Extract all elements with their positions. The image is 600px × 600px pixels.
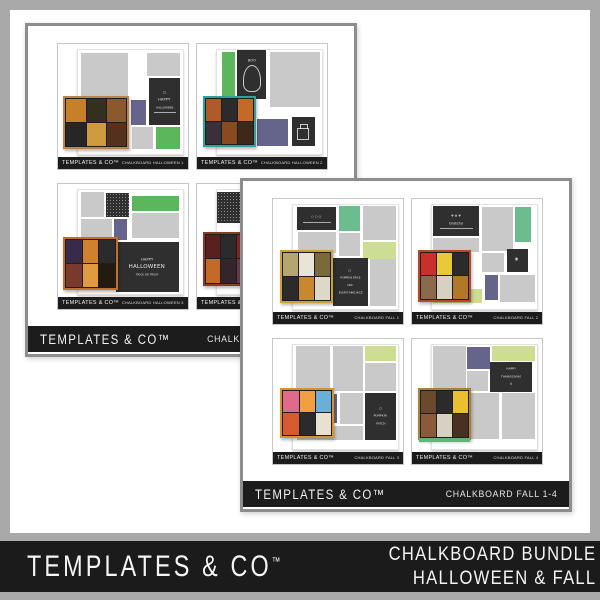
collage-photo <box>66 123 85 146</box>
card-brand: TEMPLATES & CO™ <box>40 332 171 347</box>
chalk-text: AND <box>348 284 353 287</box>
collage-photo <box>299 253 314 276</box>
collage-photo <box>238 122 253 144</box>
chalk-text: PUMPKIN <box>374 414 387 418</box>
collage-photo <box>421 414 436 437</box>
example-page-collage <box>418 250 471 302</box>
collage-photo <box>206 259 220 283</box>
preview-footer-bar: TEMPLATES & CO™CHALKBOARD FALL 3 <box>273 452 403 464</box>
preview-brand: TEMPLATES & CO™ <box>277 315 334 320</box>
example-page-collage <box>63 96 129 149</box>
lime-paper-block <box>363 242 396 259</box>
preview-title: CHALKBOARD FALL 1 <box>354 316 399 320</box>
chalk-text: PATCH <box>376 422 385 426</box>
green-paper-block <box>156 127 180 149</box>
collage-photo <box>66 240 82 263</box>
preview-footer-bar: TEMPLATES & CO™CHALKBOARD FALL 1 <box>273 312 403 324</box>
photo-placeholder-block <box>482 253 504 272</box>
brand-logo: TEMPLATES & CO™ <box>27 550 280 584</box>
green-paper-block <box>132 196 179 211</box>
photo-placeholder-block <box>296 346 330 391</box>
lime-paper-block <box>492 346 535 361</box>
product-title: CHALKBOARD BUNDLE HALLOWEEN & FALL <box>388 543 596 590</box>
photo-placeholder-block <box>482 207 512 251</box>
chalkboard-block <box>106 193 129 217</box>
template-preview: BOOTEMPLATES & CO™CHALKBOARD HALLOWEEN 2 <box>196 43 328 170</box>
collage-photo <box>87 123 106 146</box>
card-banner-bar: TEMPLATES & CO™CHALKBOARD FALL 1-4 <box>243 481 569 507</box>
preview-title: CHALKBOARD FALL 4 <box>493 456 538 460</box>
preview-brand: TEMPLATES & CO™ <box>62 300 119 305</box>
collage-photo <box>83 240 99 263</box>
purple-paper-block <box>131 100 147 125</box>
collage-photo <box>206 235 220 259</box>
collage-photo <box>421 391 436 414</box>
preview-brand: TEMPLATES & CO™ <box>62 160 119 165</box>
chalk-text: ⌂ <box>510 382 512 386</box>
product-preview-image: ○HAPPYHALLOWEENTEMPLATES & CO™CHALKBOARD… <box>0 0 600 600</box>
template-preview: ✾ ✿ ✾Grateful❀TEMPLATES & CO™CHALKBOARD … <box>411 198 543 325</box>
template-preview: ○PUMPKINPATCHTEMPLATES & CO™CHALKBOARD F… <box>272 338 404 465</box>
collage-photo <box>107 123 126 146</box>
chalkboard-block: HAPPYTHANKSGIVING⌂ <box>490 362 532 392</box>
collage-photo <box>221 235 235 259</box>
collage-photo <box>453 253 468 276</box>
photo-placeholder-block <box>132 127 153 149</box>
collage-photo <box>206 122 221 144</box>
chalk-line <box>303 222 331 223</box>
example-page-collage <box>63 237 118 290</box>
preview-title: CHALKBOARD HALLOWEEN 2 <box>261 161 323 165</box>
preview-brand: TEMPLATES & CO™ <box>201 160 258 165</box>
scrapbook-page-mockup: HAPPYTHANKSGIVING⌂ <box>431 344 538 450</box>
chalk-text: ❀ <box>515 257 519 263</box>
preview-title: CHALKBOARD FALL 3 <box>354 456 399 460</box>
scrapbook-page-mockup: ○ ○ ○○PUMPKIN SPICEANDEVERYTHING NICE <box>292 204 399 310</box>
cards-layer: ○HAPPYHALLOWEENTEMPLATES & CO™CHALKBOARD… <box>0 0 600 600</box>
brand-text: TEMPLATES & CO <box>27 550 272 583</box>
chalkboard-block: ○HAPPYHALLOWEEN <box>149 78 179 125</box>
photo-placeholder-block <box>270 52 320 107</box>
collage-photo <box>221 259 235 283</box>
card-brand: TEMPLATES & CO™ <box>255 487 386 502</box>
photo-placeholder-block <box>340 393 363 424</box>
collage-photo <box>437 391 452 414</box>
collage-photo <box>107 99 126 122</box>
collage-photo <box>299 277 314 300</box>
collage-photo <box>453 391 468 414</box>
chalk-text: HALLOWEEN <box>156 106 173 109</box>
chalk-text: HALLOWEEN <box>129 264 165 271</box>
collage-strip <box>419 438 470 442</box>
photo-placeholder-block <box>365 363 395 391</box>
chalk-text: HAPPY <box>506 367 516 371</box>
example-page-collage <box>418 388 471 440</box>
collage-photo <box>437 253 452 276</box>
collage-photo <box>316 391 331 412</box>
chalk-line <box>440 228 473 229</box>
collage-photo <box>421 276 436 299</box>
preview-brand: TEMPLATES & CO™ <box>416 315 473 320</box>
purple-paper-block <box>485 275 499 300</box>
collage-photo <box>87 99 106 122</box>
cake-doodle-icon <box>297 128 309 140</box>
chalk-text: HAPPY <box>141 257 153 262</box>
collage-photo <box>222 99 237 121</box>
collage-photo <box>316 413 331 434</box>
chalk-line <box>154 112 176 113</box>
photo-placeholder-block <box>147 53 180 76</box>
template-preview: HAPPYHALLOWEENTRICK OR TREATTEMPLATES & … <box>57 183 189 310</box>
chalkboard-block: ○PUMPKIN SPICEANDEVERYTHING NICE <box>333 258 368 306</box>
preview-title: CHALKBOARD HALLOWEEN 3 <box>122 301 184 305</box>
preview-footer-bar: TEMPLATES & CO™CHALKBOARD HALLOWEEN 1 <box>58 157 188 169</box>
preview-footer-bar: TEMPLATES & CO™CHALKBOARD HALLOWEEN 2 <box>197 157 327 169</box>
collage-photo <box>99 264 115 287</box>
scrapbook-page-mockup: BOO <box>216 49 323 155</box>
photo-placeholder-block <box>363 206 396 240</box>
purple-paper-block <box>467 347 490 369</box>
collage-photo <box>222 122 237 144</box>
collage-photo <box>283 413 298 434</box>
chalk-text: ✾ ✿ ✾ <box>451 214 461 218</box>
collage-photo <box>66 264 82 287</box>
example-page-collage <box>203 96 256 147</box>
preview-footer-bar: TEMPLATES & CO™CHALKBOARD FALL 4 <box>412 452 542 464</box>
template-preview: ○HAPPYHALLOWEENTEMPLATES & CO™CHALKBOARD… <box>57 43 189 170</box>
green-paper-block <box>222 52 235 96</box>
chalkboard-block: ○ ○ ○ <box>297 207 336 230</box>
preview-brand: TEMPLATES & CO™ <box>277 455 334 460</box>
chalkboard-block: HAPPYHALLOWEENTRICK OR TREAT <box>116 242 179 292</box>
collage-photo <box>283 391 298 412</box>
collage-photo <box>99 240 115 263</box>
chalk-text: ○ ○ ○ <box>311 215 321 219</box>
collage-photo <box>300 413 315 434</box>
collage-photo <box>315 277 330 300</box>
chalkboard-block <box>292 117 315 146</box>
chalkboard-block: BOO <box>237 50 266 99</box>
collage-photo <box>437 414 452 437</box>
template-preview: ○ ○ ○○PUMPKIN SPICEANDEVERYTHING NICETEM… <box>272 198 404 325</box>
collage-photo <box>421 253 436 276</box>
photo-placeholder-block <box>333 346 363 391</box>
collage-photo <box>453 276 468 299</box>
chalk-text: ○ <box>349 269 352 273</box>
photo-placeholder-block <box>339 233 360 256</box>
scrapbook-page-mockup: ✾ ✿ ✾Grateful❀ <box>431 204 538 310</box>
collage-photo <box>300 391 315 412</box>
chalkboard-block: ❀ <box>507 249 528 272</box>
photo-placeholder-block <box>500 275 535 302</box>
collage-photo <box>315 253 330 276</box>
product-title-line1: CHALKBOARD BUNDLE <box>388 543 596 566</box>
card-chalkboard-fall: ○ ○ ○○PUMPKIN SPICEANDEVERYTHING NICETEM… <box>240 178 572 512</box>
preview-title: CHALKBOARD HALLOWEEN 1 <box>122 161 184 165</box>
template-preview: HAPPYTHANKSGIVING⌂TEMPLATES & CO™CHALKBO… <box>411 338 543 465</box>
collage-photo <box>206 99 221 121</box>
lime-paper-block <box>365 346 395 361</box>
example-page-collage <box>280 388 334 438</box>
example-page-collage <box>280 250 333 303</box>
scrapbook-page-mockup: ○PUMPKINPATCH <box>292 344 399 450</box>
product-title-line2: HALLOWEEN & FALL <box>388 567 596 590</box>
bottom-banner: TEMPLATES & CO™ CHALKBOARD BUNDLE HALLOW… <box>0 541 600 592</box>
chalk-text: THANKSGIVING <box>501 375 521 378</box>
ghost-doodle-icon <box>243 65 261 91</box>
preview-footer-bar: TEMPLATES & CO™CHALKBOARD FALL 2 <box>412 312 542 324</box>
chalk-text: ○ <box>163 90 167 95</box>
chalk-text: ○ <box>379 407 382 411</box>
photo-placeholder-block <box>81 219 111 238</box>
photo-placeholder-block <box>433 346 466 391</box>
mint-paper-block <box>515 207 531 242</box>
photo-placeholder-block <box>81 192 104 217</box>
chalkboard-block: ○PUMPKINPATCH <box>365 393 395 440</box>
chalk-text: Grateful <box>449 221 463 225</box>
chalkboard-block: ✾ ✿ ✾Grateful <box>433 206 479 236</box>
chalk-text: PUMPKIN SPICE <box>340 277 360 280</box>
preview-footer-bar: TEMPLATES & CO™CHALKBOARD HALLOWEEN 3 <box>58 297 188 309</box>
collage-photo <box>283 277 298 300</box>
purple-paper-block <box>257 119 289 146</box>
mint-paper-block <box>339 206 360 231</box>
chalk-text: TRICK OR TREAT <box>136 273 159 276</box>
collage-photo <box>238 99 253 121</box>
trademark-symbol: ™ <box>272 556 281 568</box>
chalk-text: BOO <box>248 59 256 63</box>
photo-placeholder-block <box>467 393 500 439</box>
preview-brand: TEMPLATES & CO™ <box>416 455 473 460</box>
preview-title: CHALKBOARD FALL 2 <box>493 316 538 320</box>
collage-photo <box>83 264 99 287</box>
chalk-text: EVERYTHING NICE <box>338 292 362 295</box>
chalk-text: HAPPY <box>158 98 170 103</box>
photo-placeholder-block <box>132 213 179 238</box>
collage-photo <box>283 253 298 276</box>
photo-placeholder-block <box>370 259 396 306</box>
scrapbook-page-mockup: HAPPYHALLOWEENTRICK OR TREAT <box>77 189 184 295</box>
collage-photo <box>453 414 468 437</box>
collage-photo <box>437 276 452 299</box>
photo-placeholder-block <box>502 393 535 439</box>
scrapbook-page-mockup: ○HAPPYHALLOWEEN <box>77 49 184 155</box>
collage-photo <box>66 99 85 122</box>
card-label: CHALKBOARD FALL 1-4 <box>445 489 557 500</box>
